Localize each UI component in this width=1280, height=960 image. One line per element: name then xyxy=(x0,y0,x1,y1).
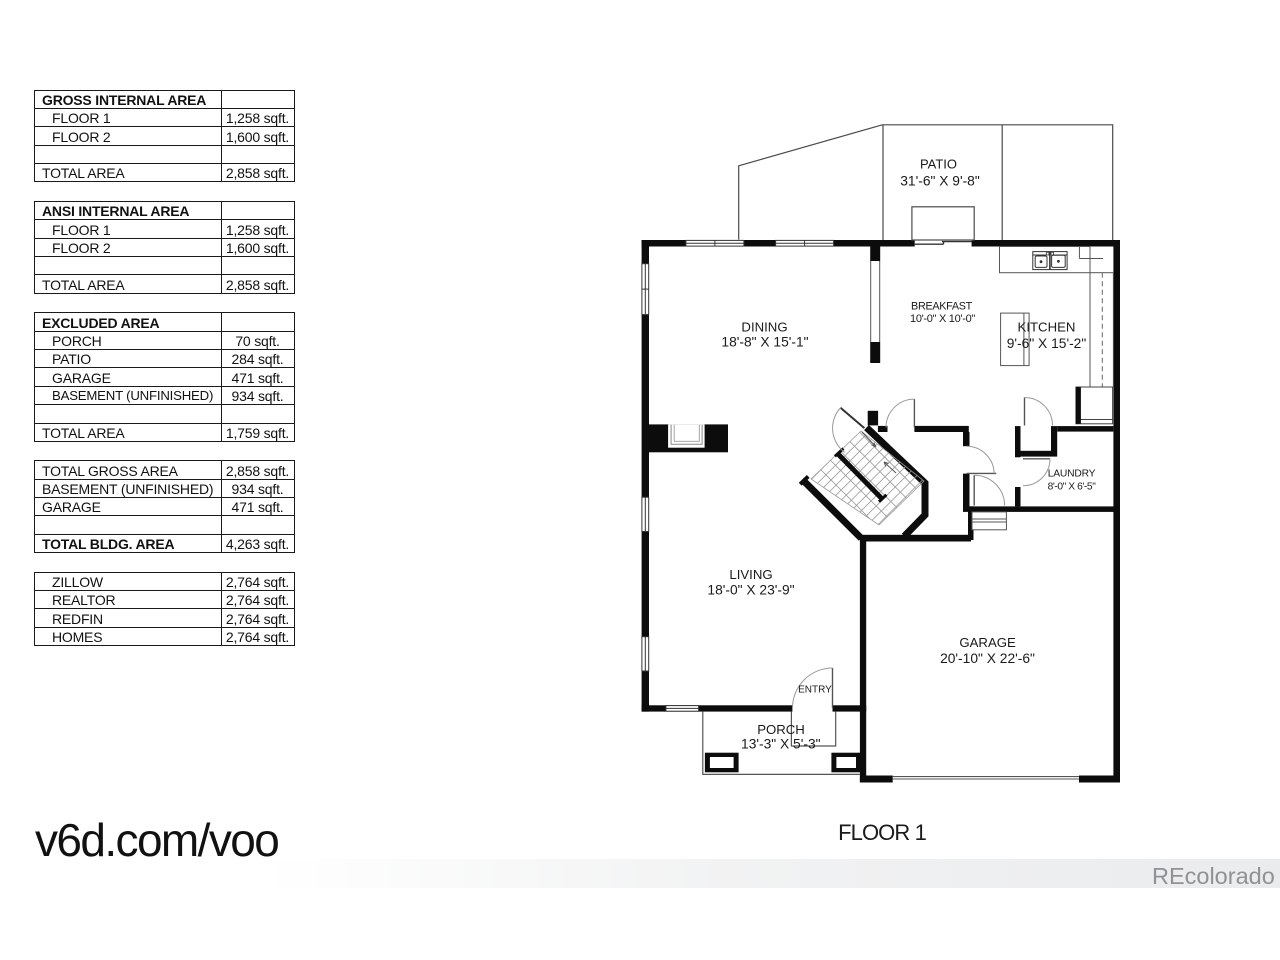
svg-text:8'-0" X 6'-5": 8'-0" X 6'-5" xyxy=(1048,481,1097,492)
svg-text:18'-0" X 23'-9": 18'-0" X 23'-9" xyxy=(707,583,794,598)
svg-text:LAUNDRY: LAUNDRY xyxy=(1048,469,1096,480)
svg-text:KITCHEN: KITCHEN xyxy=(1018,320,1076,335)
svg-text:20'-10" X 22'-6": 20'-10" X 22'-6" xyxy=(940,651,1035,666)
svg-text:PATIO: PATIO xyxy=(920,157,957,172)
svg-text:31'-6" X 9'-8": 31'-6" X 9'-8" xyxy=(900,174,980,189)
svg-text:DINING: DINING xyxy=(741,320,787,335)
svg-text:PORCH: PORCH xyxy=(757,722,805,737)
svg-text:LIVING: LIVING xyxy=(729,567,772,582)
svg-text:10'-0" X 10'-0": 10'-0" X 10'-0" xyxy=(910,313,975,325)
svg-text:18'-8" X 15'-1": 18'-8" X 15'-1" xyxy=(721,334,808,349)
svg-text:GARAGE: GARAGE xyxy=(959,635,1016,650)
svg-text:ENTRY: ENTRY xyxy=(798,685,832,696)
svg-text:13'-3" X 5'-3": 13'-3" X 5'-3" xyxy=(741,737,821,752)
svg-text:BREAKFAST: BREAKFAST xyxy=(911,301,973,313)
svg-text:9'-6" X 15'-2": 9'-6" X 15'-2" xyxy=(1007,336,1087,351)
